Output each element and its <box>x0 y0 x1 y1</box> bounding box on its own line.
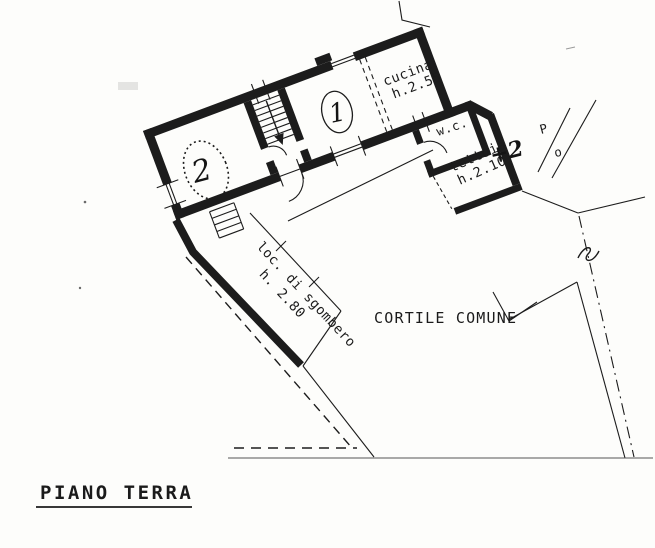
boundary-line <box>522 191 578 213</box>
window-line <box>333 58 355 66</box>
courtyard-label: CORTILE COMUNE <box>374 309 517 327</box>
door-threshold <box>280 169 301 177</box>
page-title: PIANO TERRA <box>40 482 193 504</box>
wall-segment <box>454 183 523 214</box>
boundary-dashdot-line <box>579 216 634 457</box>
lot-corner-line <box>399 1 430 27</box>
boundary-mark-p: P <box>538 120 550 137</box>
boundary-lines <box>228 1 653 458</box>
floor-plan-drawing: 2 1 +2 P o cucina h.2.55 w.c. tettoia h.… <box>0 0 655 548</box>
boundary-line <box>578 197 645 213</box>
stair-tread <box>214 216 238 225</box>
external-stair <box>210 203 244 238</box>
room1-number: 1 <box>326 97 348 130</box>
tettoia-open-edge <box>433 174 452 211</box>
stair-tread <box>212 209 236 218</box>
door-swing-arc <box>281 173 309 201</box>
stair-direction-arrow <box>266 101 280 138</box>
stray-mark <box>566 47 575 49</box>
boundary-hatch-line <box>538 108 570 172</box>
window-line <box>166 184 174 205</box>
boundary-mark-o: o <box>553 144 564 160</box>
scan-smudge <box>118 82 138 90</box>
drawing-title: PIANO TERRA <box>36 482 193 507</box>
boundary-hatch-line <box>552 100 596 178</box>
wall-segment <box>143 61 333 139</box>
window-line <box>169 183 177 204</box>
interior-wall-segment <box>244 100 269 150</box>
stair-tread <box>217 222 241 231</box>
partition-line <box>365 57 392 129</box>
partition-line <box>360 60 387 132</box>
dashed-partition <box>360 57 393 131</box>
door-swing-arc <box>269 142 287 160</box>
wall-segment <box>412 129 423 145</box>
window-line <box>331 55 353 63</box>
scan-speck <box>79 287 81 289</box>
break-squiggle-mark <box>578 248 599 261</box>
room2-number: 2 <box>187 152 215 191</box>
stair-tread <box>219 229 243 238</box>
boundary-line <box>577 282 625 458</box>
floor-plan-page: 2 1 +2 P o cucina h.2.55 w.c. tettoia h.… <box>0 0 655 548</box>
scan-specks <box>79 82 138 289</box>
scan-speck <box>84 201 87 204</box>
boundary-line <box>303 366 374 457</box>
wall-segment <box>353 27 425 61</box>
wall-segment <box>143 128 172 185</box>
door-swing-arc <box>424 136 447 159</box>
